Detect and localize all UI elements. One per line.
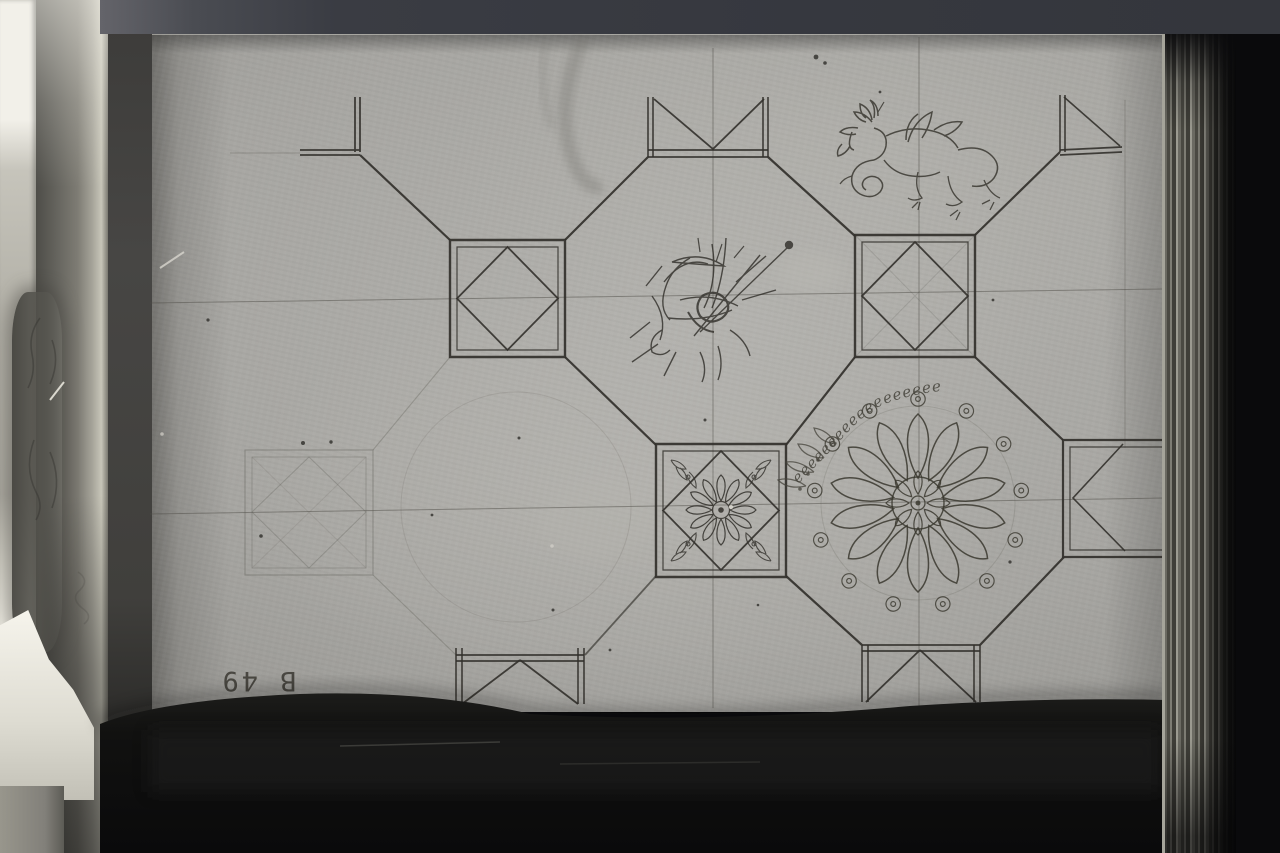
coffer-corner-top-left (300, 97, 360, 155)
coffer-square-top (648, 97, 768, 157)
coffer-square-bottom-left (456, 648, 584, 704)
rosette-hub (886, 471, 950, 535)
vine-garland: eeeeeeeeeeeeeeeeee (778, 377, 943, 491)
coffer-square-bottom-right (862, 645, 980, 702)
ornate-coffer-square (656, 444, 786, 577)
table-shadow-band (150, 730, 1160, 792)
coffer-corner-top-right (1060, 95, 1122, 155)
book-page-stack-edge (1162, 34, 1236, 853)
scribble-sketch (630, 238, 793, 382)
vine-scroll-loops: eeeeeeeeeeeeeeeeee (788, 377, 943, 487)
ghost-drawing-curves (28, 318, 89, 624)
coffer-grid-ink (300, 95, 1170, 704)
photo-scene: eeeeeeeeeeeeeeeeee (0, 0, 1280, 853)
page-bottom-shadow (100, 693, 1166, 853)
paper-specks (206, 55, 1011, 652)
sketch-drawing: eeeeeeeeeeeeeeeeee (0, 0, 1280, 853)
construction-guide-lines (150, 37, 1164, 708)
